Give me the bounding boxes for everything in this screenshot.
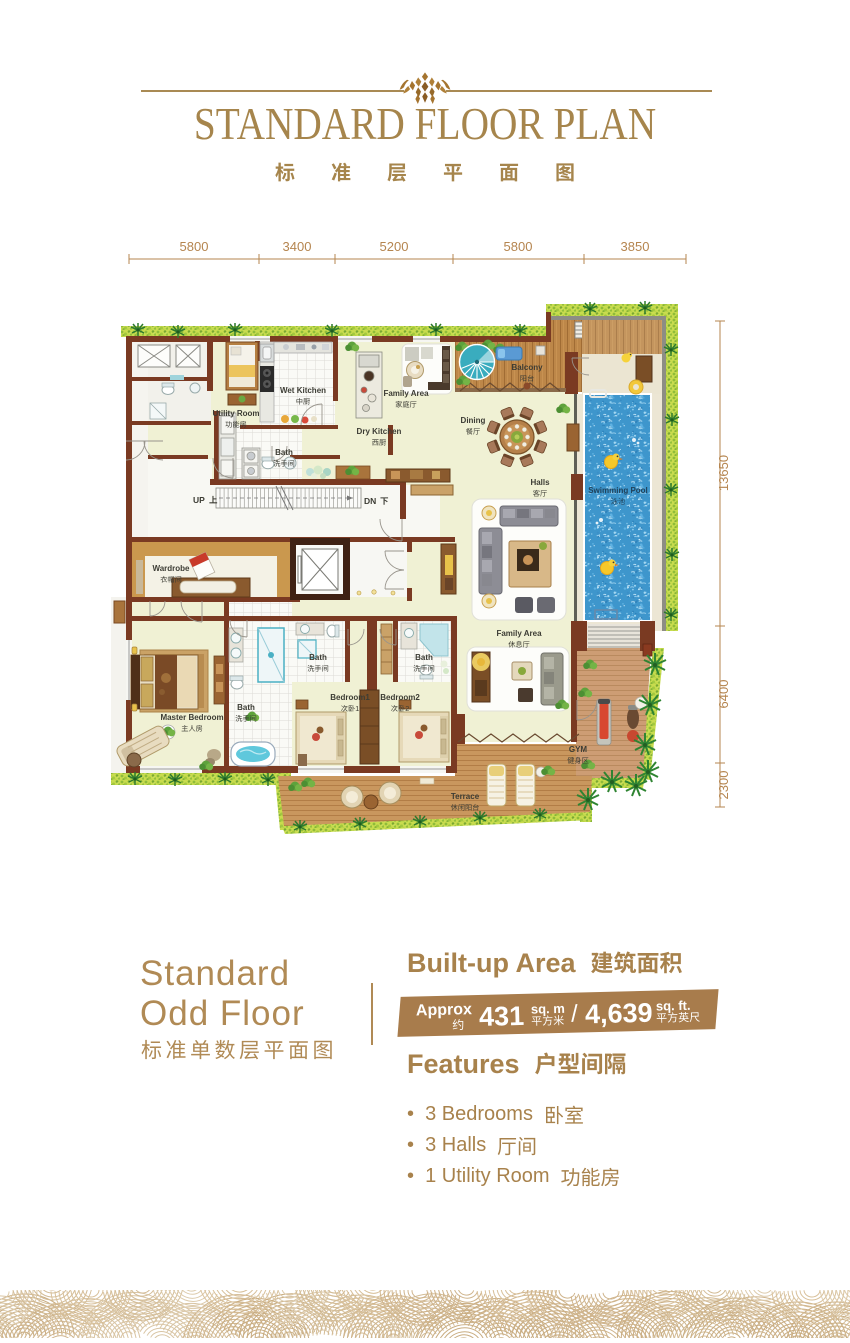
svg-text:3400: 3400: [283, 239, 312, 254]
svg-text:Terrace: Terrace: [451, 792, 480, 801]
svg-text:Balcony: Balcony: [511, 363, 543, 372]
svg-text:GYM: GYM: [569, 745, 588, 754]
svg-text:2: 2: [405, 704, 409, 713]
svg-text:1: 1: [355, 704, 359, 713]
svg-text:Halls: Halls: [530, 478, 550, 487]
svg-text:6400: 6400: [716, 680, 731, 709]
svg-text:Dry Kitchen: Dry Kitchen: [357, 427, 402, 436]
svg-text:5200: 5200: [380, 239, 409, 254]
svg-text:2300: 2300: [716, 771, 731, 800]
svg-text:UP: UP: [193, 495, 205, 505]
svg-text:Family Area: Family Area: [383, 389, 429, 398]
svg-text:Swimming Pool: Swimming Pool: [588, 486, 648, 495]
svg-text:Bedroom2: Bedroom2: [380, 693, 420, 702]
svg-text:13650: 13650: [716, 455, 731, 491]
svg-text:Bath: Bath: [275, 448, 293, 457]
svg-text:DN: DN: [364, 496, 376, 506]
svg-text:Bedroom1: Bedroom1: [330, 693, 370, 702]
svg-text:Bath: Bath: [237, 703, 255, 712]
svg-text:Master Bedroom: Master Bedroom: [160, 713, 223, 722]
svg-text:Wardrobe: Wardrobe: [152, 564, 190, 573]
svg-text:Wet Kitchen: Wet Kitchen: [280, 386, 326, 395]
svg-text:Bath: Bath: [309, 653, 327, 662]
svg-text:Utility Room: Utility Room: [212, 409, 259, 418]
svg-text:Family Area: Family Area: [496, 629, 542, 638]
svg-text:Bath: Bath: [415, 653, 433, 662]
svg-text:3850: 3850: [621, 239, 650, 254]
svg-text:Dining: Dining: [461, 416, 486, 425]
svg-text:5800: 5800: [504, 239, 533, 254]
svg-text:5800: 5800: [180, 239, 209, 254]
